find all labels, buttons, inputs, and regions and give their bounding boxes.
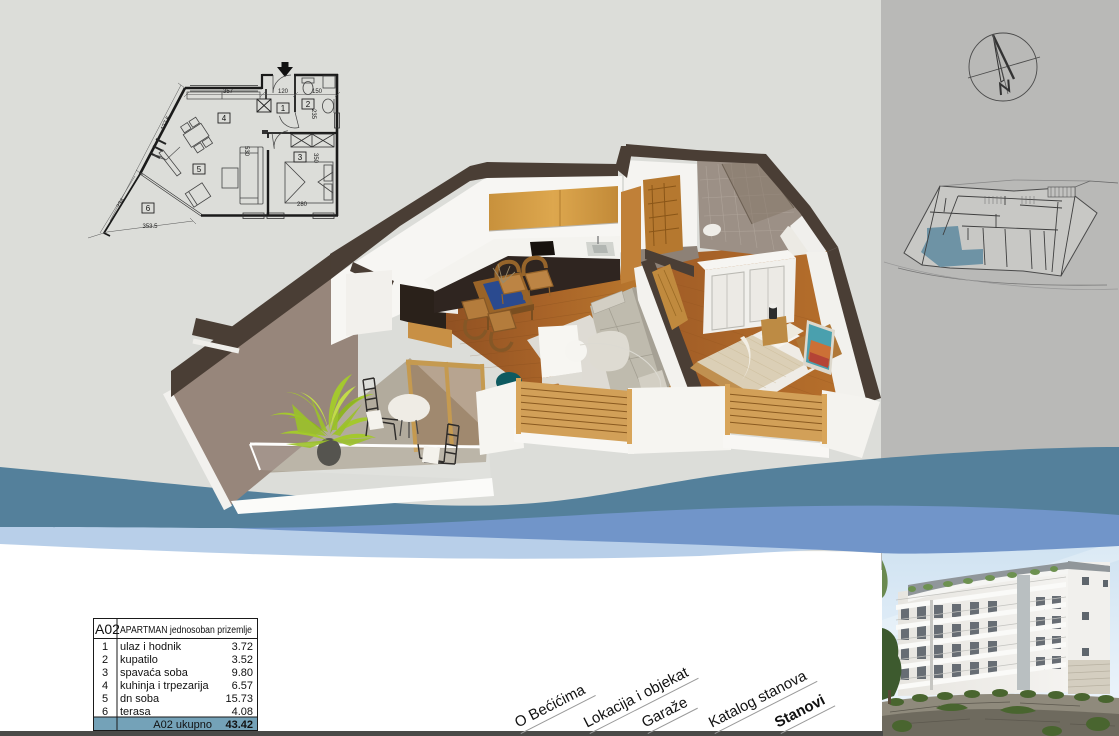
svg-text:ulaz i hodnik: ulaz i hodnik xyxy=(120,641,182,653)
svg-text:kupatilo: kupatilo xyxy=(120,654,158,666)
svg-text:1: 1 xyxy=(102,641,108,653)
svg-text:530: 530 xyxy=(243,146,249,157)
svg-text:spavaća soba: spavaća soba xyxy=(120,667,189,679)
svg-text:6: 6 xyxy=(102,706,108,718)
svg-text:6: 6 xyxy=(146,204,151,213)
svg-text:150: 150 xyxy=(312,89,323,95)
svg-text:3: 3 xyxy=(102,667,108,679)
svg-text:357: 357 xyxy=(223,89,234,95)
svg-text:235: 235 xyxy=(310,109,316,120)
svg-text:3.52: 3.52 xyxy=(232,654,253,666)
svg-text:353.5: 353.5 xyxy=(142,224,158,230)
svg-text:A02 ukupno: A02 ukupno xyxy=(153,719,212,730)
svg-text:3: 3 xyxy=(298,153,303,162)
svg-text:dn soba: dn soba xyxy=(120,693,160,705)
svg-text:2: 2 xyxy=(306,100,311,109)
svg-text:A02: A02 xyxy=(95,621,120,637)
svg-text:APARTMAN jednosoban prizemlje: APARTMAN jednosoban prizemlje xyxy=(120,625,252,636)
svg-text:350: 350 xyxy=(312,153,318,164)
svg-text:kuhinja i trpezarija: kuhinja i trpezarija xyxy=(120,680,210,692)
svg-text:120: 120 xyxy=(278,89,289,95)
svg-text:4.08: 4.08 xyxy=(232,706,253,718)
svg-text:15.73: 15.73 xyxy=(225,693,253,705)
svg-text:2: 2 xyxy=(102,654,108,666)
svg-text:terasa: terasa xyxy=(120,706,151,718)
svg-text:6.57: 6.57 xyxy=(232,680,253,692)
svg-text:1: 1 xyxy=(281,104,286,113)
svg-text:5: 5 xyxy=(102,693,108,705)
svg-text:3.72: 3.72 xyxy=(232,641,253,653)
svg-text:43.42: 43.42 xyxy=(225,719,253,730)
svg-text:4: 4 xyxy=(222,114,227,123)
svg-text:280: 280 xyxy=(297,202,308,208)
svg-text:5: 5 xyxy=(197,165,202,174)
svg-text:4: 4 xyxy=(102,680,108,692)
svg-text:9.80: 9.80 xyxy=(232,667,253,679)
